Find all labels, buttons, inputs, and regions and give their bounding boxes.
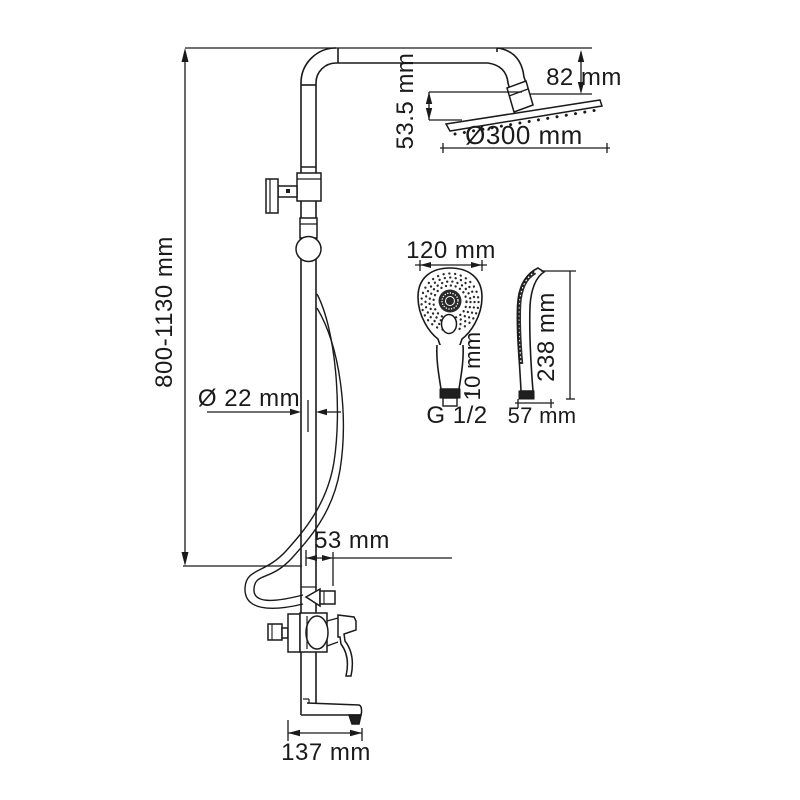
diverter-knob [266,179,278,213]
bath-spout [301,699,362,724]
handshower-connector-nut [440,389,460,398]
ball-joint [296,218,321,262]
label-handshower-depth: 57 mm [508,403,577,428]
label-handshower-width: 120 mm [406,237,496,264]
label-pipe-diameter: Ø 22 mm [198,385,300,412]
wall-flange [288,614,300,652]
mixer-lever-handle [338,615,356,676]
label-handshower-length: 238 mm [533,292,560,382]
label-head-offset: 82 mm [546,64,622,91]
label-hose-outlet-offset: 53 mm [314,527,390,554]
handshower-side-connector [519,391,534,399]
hose-outlet-nut [320,591,335,604]
dim-hose-outlet-offset [306,550,452,586]
shower-head-connector-cone [507,81,533,112]
shower-system-drawing: 800-1130 mm [0,0,800,800]
handshower-mode-button [442,315,457,334]
label-spout-length: 137 mm [281,739,371,766]
label-handshower-connector: 10 mm [460,332,485,401]
diverter-valve [266,167,321,213]
label-total-height: 800-1130 mm [151,236,178,388]
label-head-drop: 53.5 mm [392,53,419,150]
shower-hose [245,294,343,608]
dim-spout-length [288,720,362,741]
spout-aerator [349,715,361,724]
hose-outlet-connector [306,589,320,606]
label-head-diameter: Ø300 mm [465,120,583,150]
technical-drawing-page: 800-1130 mm [0,0,800,800]
label-handshower-thread: G 1/2 [426,402,487,429]
mixer-body [268,587,356,676]
wall-union-left [268,624,282,640]
